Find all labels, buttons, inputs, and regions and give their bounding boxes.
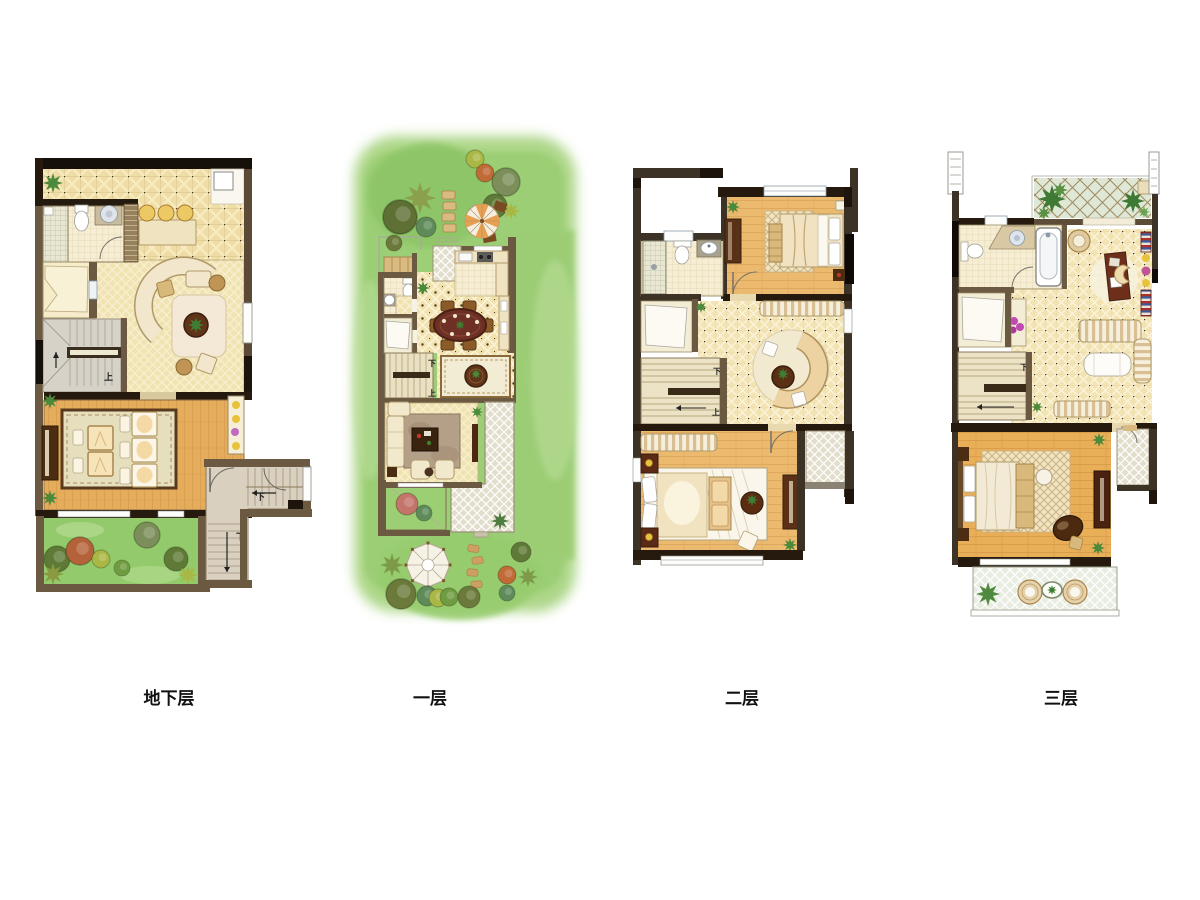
svg-text:上: 上	[712, 407, 720, 417]
svg-text:上: 上	[428, 388, 436, 398]
svg-text:下: 下	[428, 359, 436, 368]
svg-text:地下层: 地下层	[144, 688, 195, 708]
svg-text:三层: 三层	[1044, 689, 1078, 708]
svg-text:二层: 二层	[725, 689, 759, 708]
svg-text:一层: 一层	[413, 689, 447, 708]
svg-text:上: 上	[104, 371, 113, 382]
svg-text:下: 下	[713, 367, 721, 376]
